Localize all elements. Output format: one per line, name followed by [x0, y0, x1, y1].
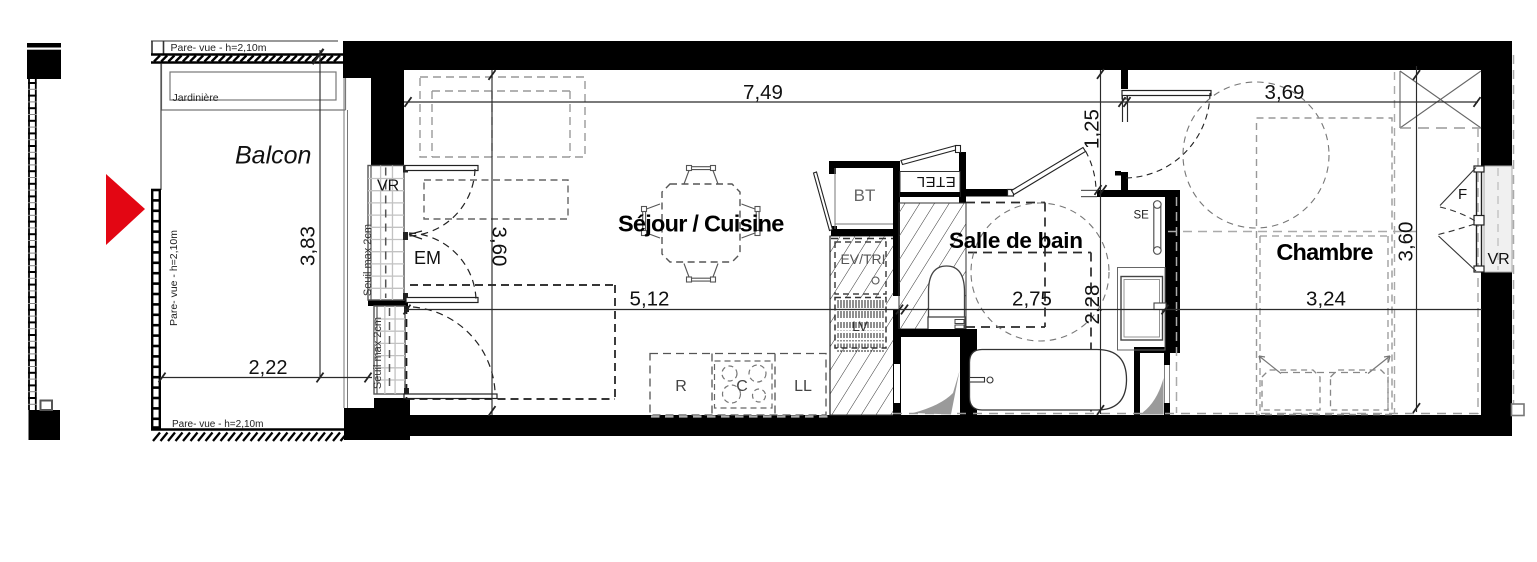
svg-text:Chambre: Chambre [1276, 239, 1373, 265]
svg-text:3,69: 3,69 [1265, 81, 1305, 104]
svg-text:SE: SE [1134, 210, 1150, 222]
svg-text:ETEL: ETEL [916, 173, 956, 190]
svg-text:Seuil max 2cm: Seuil max 2cm [372, 317, 384, 389]
svg-text:2,75: 2,75 [1012, 288, 1052, 311]
svg-text:Pare- vue - h=2,10m: Pare- vue - h=2,10m [172, 419, 263, 430]
svg-text:EV/TRI: EV/TRI [840, 251, 885, 267]
svg-text:VR: VR [377, 178, 399, 195]
svg-text:VR: VR [1488, 251, 1510, 268]
svg-text:1,25: 1,25 [1081, 109, 1104, 149]
svg-text:BT: BT [854, 186, 876, 205]
svg-text:R: R [675, 378, 687, 395]
svg-text:5,12: 5,12 [630, 288, 670, 311]
svg-text:LL: LL [794, 378, 812, 395]
svg-text:Pare- vue - h=2,10m: Pare- vue - h=2,10m [171, 42, 267, 54]
svg-text:Salle de bain: Salle de bain [949, 228, 1083, 253]
svg-text:7,49: 7,49 [743, 81, 783, 104]
svg-text:C: C [736, 378, 748, 395]
svg-text:Jardinière: Jardinière [173, 92, 219, 104]
svg-text:EM: EM [414, 248, 441, 268]
svg-text:3,60: 3,60 [488, 227, 511, 267]
svg-text:Séjour / Cuisine: Séjour / Cuisine [618, 211, 784, 237]
svg-text:3,60: 3,60 [1395, 222, 1418, 262]
svg-text:Pare- vue - h=2,10m: Pare- vue - h=2,10m [168, 230, 180, 326]
svg-text:2,22: 2,22 [249, 357, 288, 379]
svg-text:F: F [1458, 186, 1467, 203]
svg-text:3,24: 3,24 [1306, 288, 1346, 311]
svg-text:Seuil max 2cm: Seuil max 2cm [362, 224, 374, 296]
svg-text:2,28: 2,28 [1081, 285, 1104, 325]
svg-text:3,83: 3,83 [297, 226, 320, 266]
svg-text:LV: LV [852, 319, 868, 334]
svg-text:Balcon: Balcon [235, 142, 311, 170]
